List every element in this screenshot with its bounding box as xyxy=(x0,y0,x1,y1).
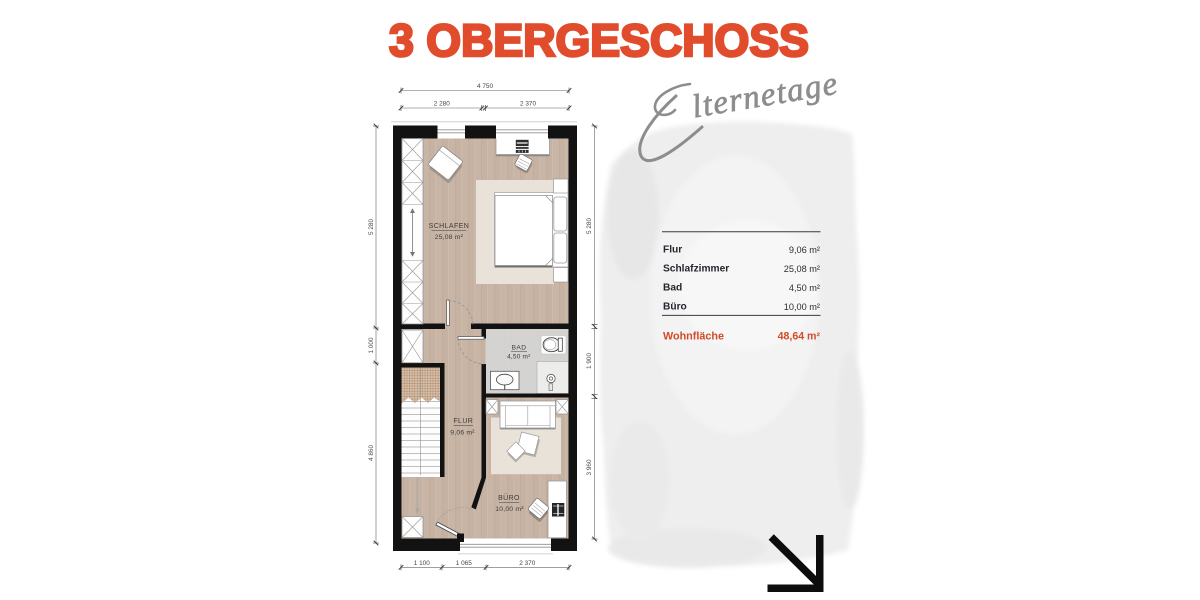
svg-text:Schlafzimmer: Schlafzimmer xyxy=(663,264,729,275)
svg-text:1 100: 1 100 xyxy=(414,560,430,567)
svg-text:SCHLAFEN: SCHLAFEN xyxy=(429,223,470,230)
svg-text:1 000: 1 000 xyxy=(368,337,375,353)
svg-text:5 280: 5 280 xyxy=(368,219,375,235)
svg-text:3 960: 3 960 xyxy=(586,459,593,475)
svg-text:Bad: Bad xyxy=(663,282,682,293)
svg-text:10,00 m²: 10,00 m² xyxy=(784,302,820,312)
svg-text:FLUR: FLUR xyxy=(453,418,473,425)
svg-text:Wohnfläche: Wohnfläche xyxy=(663,331,724,343)
svg-text:2 370: 2 370 xyxy=(519,560,535,567)
svg-text:2 370: 2 370 xyxy=(520,101,536,108)
svg-text:1 065: 1 065 xyxy=(456,560,472,567)
svg-text:1 900: 1 900 xyxy=(586,353,593,369)
svg-text:lternetage: lternetage xyxy=(689,66,841,126)
svg-text:5 280: 5 280 xyxy=(586,218,593,234)
svg-text:10,00 m²: 10,00 m² xyxy=(495,506,524,513)
svg-text:4,50 m²: 4,50 m² xyxy=(507,354,531,361)
svg-text:9,06 m²: 9,06 m² xyxy=(789,245,820,255)
svg-text:25,08 m²: 25,08 m² xyxy=(435,234,464,241)
svg-text:Flur: Flur xyxy=(663,244,682,255)
svg-text:Büro: Büro xyxy=(663,301,687,312)
svg-text:4 860: 4 860 xyxy=(368,445,375,461)
svg-text:BAD: BAD xyxy=(512,344,527,351)
svg-text:3 OBERGESCHOSS: 3 OBERGESCHOSS xyxy=(389,15,809,66)
svg-text:2 280: 2 280 xyxy=(434,101,450,108)
svg-text:4 750: 4 750 xyxy=(477,83,493,90)
svg-text:48,64 m²: 48,64 m² xyxy=(778,331,821,343)
svg-text:9,06 m²: 9,06 m² xyxy=(450,430,475,437)
svg-text:4,50 m²: 4,50 m² xyxy=(789,283,820,293)
svg-text:BÜRO: BÜRO xyxy=(498,494,520,502)
svg-text:25,08 m²: 25,08 m² xyxy=(784,264,820,274)
